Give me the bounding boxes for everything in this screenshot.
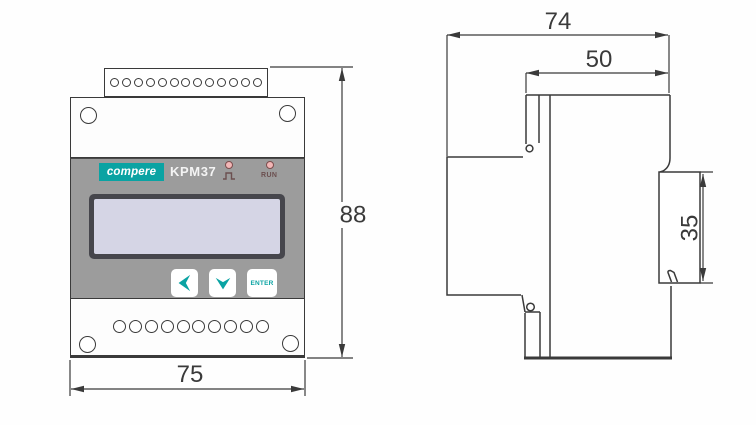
dim-label-body-depth: 50 (586, 46, 613, 73)
terminal-hole (208, 320, 221, 333)
dim-75: 75 (70, 360, 305, 396)
run-led-label: RUN (261, 172, 277, 179)
down-arrow-icon (211, 271, 235, 295)
bottom-terminal-row (113, 320, 269, 333)
terminal-hole (229, 78, 238, 87)
dim-label-rail-height: 35 (677, 215, 704, 242)
terminal-hole (224, 320, 237, 333)
terminal-hole (192, 320, 205, 333)
mount-hole (79, 336, 96, 353)
terminal-hole (240, 320, 253, 333)
terminal-hole (134, 78, 143, 87)
brand-text: compere (107, 166, 156, 178)
run-led (266, 161, 274, 169)
pulse-led (225, 161, 233, 169)
lcd-frame (89, 194, 285, 259)
down-button (209, 269, 236, 297)
dim-label-overall-depth: 74 (545, 8, 572, 35)
dim-74: 74 (447, 8, 669, 156)
terminal-hole (129, 320, 142, 333)
terminal-hole (122, 78, 131, 87)
enter-button: ENTER (247, 269, 277, 297)
brand-logo: compere (99, 163, 164, 181)
dim-label-width: 75 (177, 361, 204, 388)
terminal-hole (145, 320, 158, 333)
terminal-hole (253, 78, 262, 87)
mount-hole (80, 107, 97, 124)
terminal-hole (256, 320, 269, 333)
top-terminal-strip (104, 68, 268, 97)
terminal-hole (193, 78, 202, 87)
terminal-hole (217, 78, 226, 87)
side-view-outline (447, 95, 700, 358)
dim-label-height: 88 (340, 202, 367, 229)
dim-50: 50 (526, 46, 668, 93)
top-mounting-panel (70, 97, 305, 158)
enter-button-label: ENTER (250, 280, 273, 287)
terminal-hole (113, 320, 126, 333)
terminal-hole (110, 78, 119, 87)
mount-hole (282, 335, 299, 352)
dimensional-drawing: 74 50 35 88 (0, 0, 756, 425)
terminal-hole (170, 78, 179, 87)
mount-hole (279, 105, 296, 122)
left-button (171, 269, 198, 297)
terminal-hole (161, 320, 174, 333)
lcd-screen (94, 199, 280, 254)
terminal-hole (205, 78, 214, 87)
model-label: KPM37 (170, 163, 216, 181)
face-panel: compere KPM37 RUN (70, 158, 305, 298)
terminal-hole (146, 78, 155, 87)
left-arrow-icon (173, 271, 197, 295)
terminal-hole (177, 320, 190, 333)
terminal-hole (181, 78, 190, 87)
terminal-hole (241, 78, 250, 87)
bottom-mounting-panel (70, 298, 305, 358)
terminal-hole (158, 78, 167, 87)
pulse-icon (222, 171, 236, 183)
